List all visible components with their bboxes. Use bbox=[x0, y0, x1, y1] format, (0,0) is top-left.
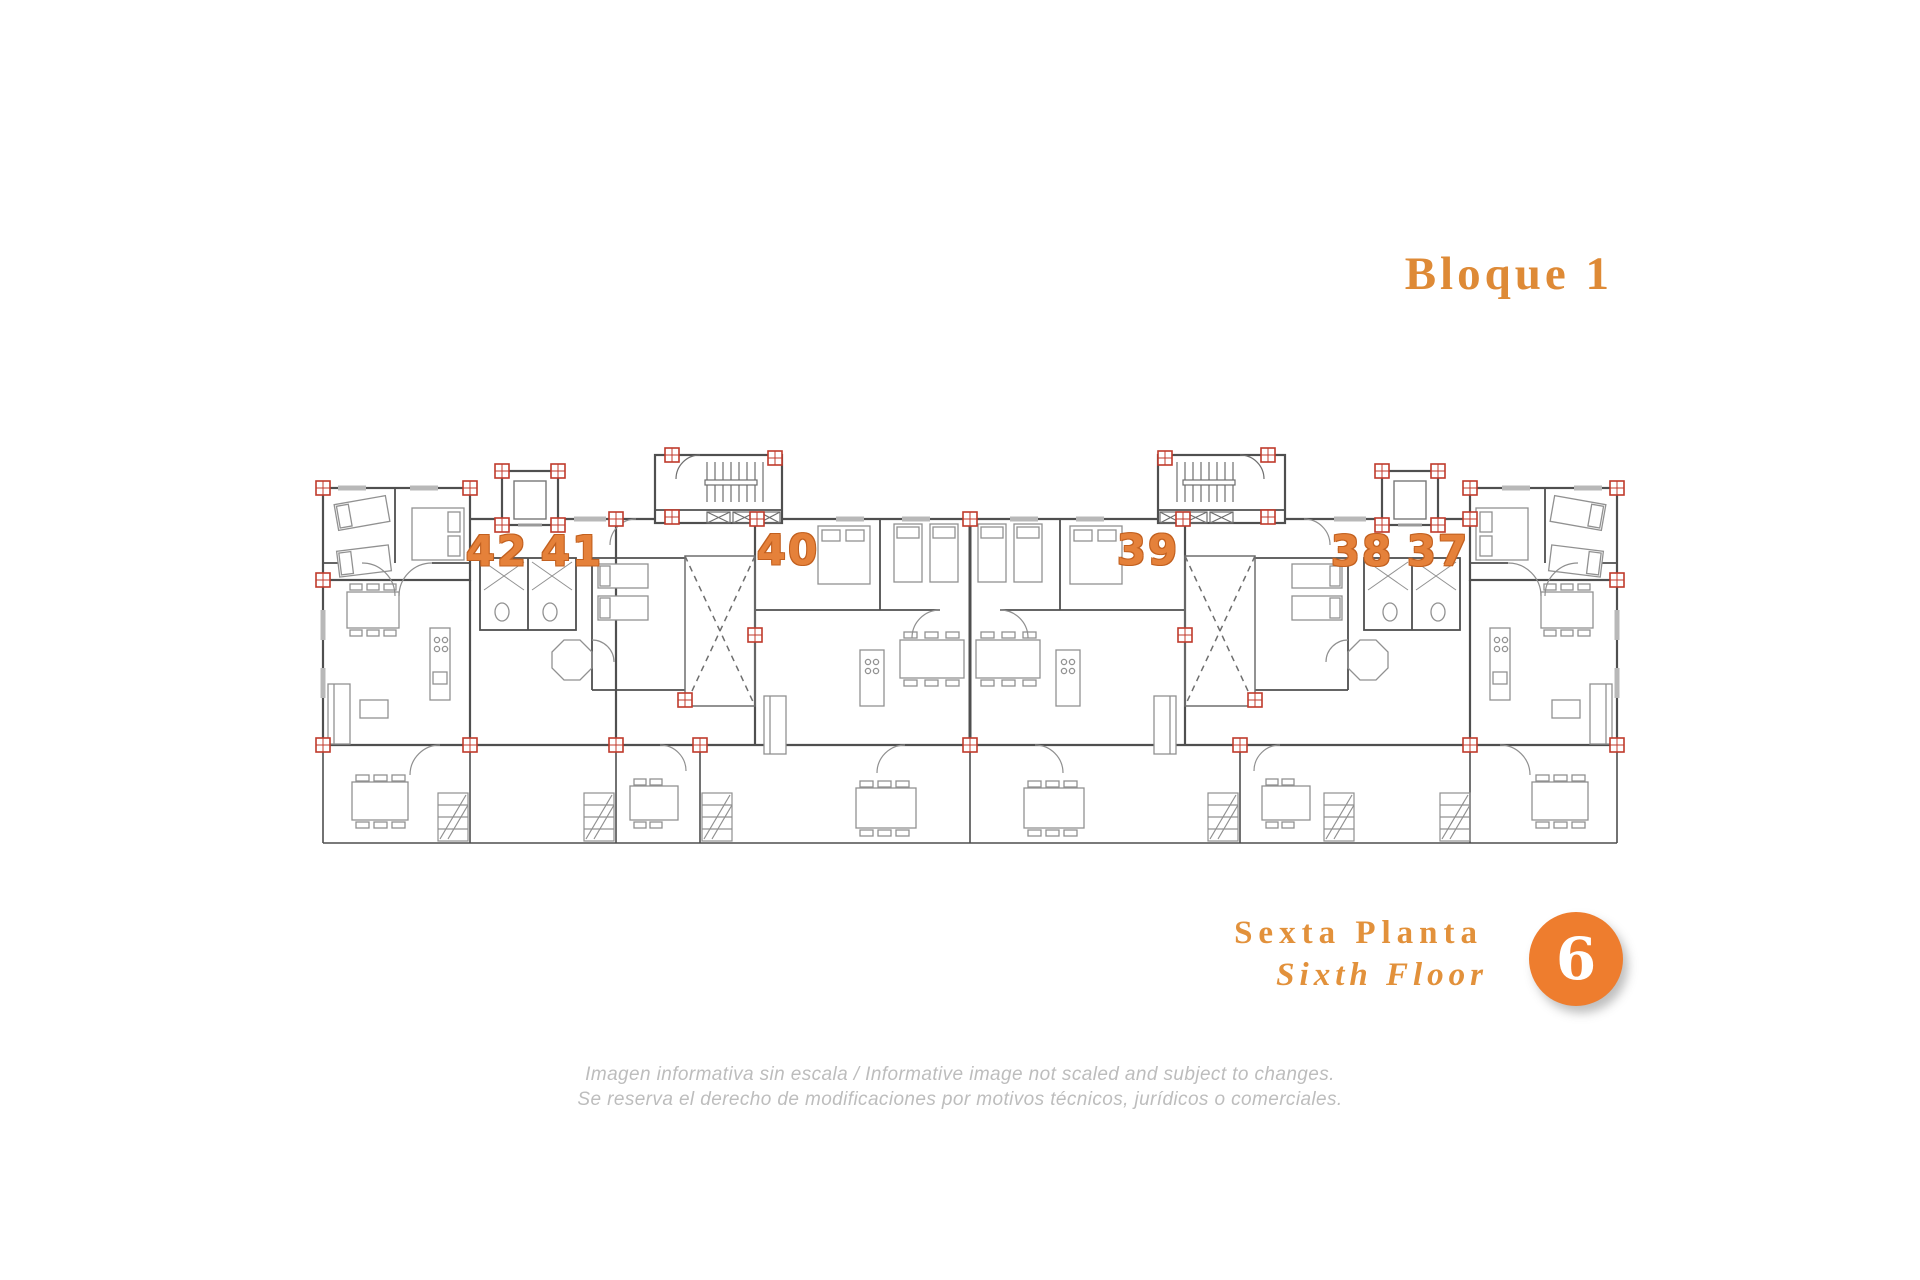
elevator-right bbox=[1382, 471, 1438, 525]
disclaimer: Imagen informativa sin escala / Informat… bbox=[0, 1062, 1920, 1112]
apartment-number-40: 40 bbox=[757, 526, 819, 575]
disclaimer-line-1: Imagen informativa sin escala / Informat… bbox=[0, 1062, 1920, 1087]
apartment-number-42: 42 bbox=[466, 527, 528, 576]
floor-plan-page: { "block_title": "Bloque 1", "plan": { "… bbox=[0, 0, 1920, 1280]
apartment-number-37: 37 bbox=[1407, 527, 1469, 576]
floor-number-badge: 6 bbox=[1529, 912, 1623, 1006]
floor-label-en: Sixth Floor bbox=[1276, 957, 1488, 994]
terraces bbox=[323, 745, 1617, 843]
floor-label-es: Sexta Planta bbox=[1234, 915, 1483, 952]
elevator-left bbox=[502, 471, 558, 525]
disclaimer-line-2: Se reserva el derecho de modificaciones … bbox=[0, 1087, 1920, 1112]
floor-number: 6 bbox=[1556, 930, 1596, 988]
block-title: Bloque 1 bbox=[1405, 247, 1613, 301]
apartment-number-39: 39 bbox=[1117, 526, 1179, 575]
apartment-number-38: 38 bbox=[1331, 527, 1393, 576]
terrace-stairs bbox=[438, 793, 1470, 841]
apartment-number-41: 41 bbox=[541, 527, 603, 576]
